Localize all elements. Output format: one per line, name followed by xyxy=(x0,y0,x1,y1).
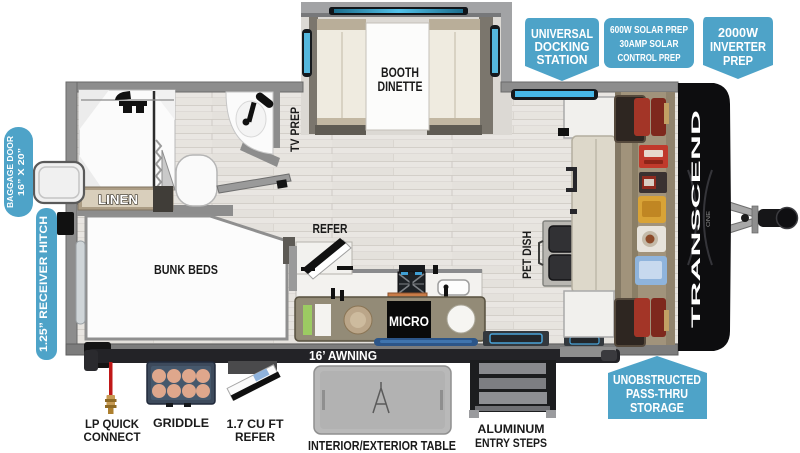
svg-text:INTERIOR/EXTERIOR TABLE: INTERIOR/EXTERIOR TABLE xyxy=(308,438,456,453)
svg-text:ENTRY STEPS: ENTRY STEPS xyxy=(475,436,547,450)
svg-text:PASS-THRU: PASS-THRU xyxy=(626,386,688,401)
svg-text:16” X 20”: 16” X 20” xyxy=(16,148,26,196)
svg-text:UNIVERSAL: UNIVERSAL xyxy=(531,27,593,41)
svg-text:LINEN: LINEN xyxy=(98,193,138,207)
svg-text:REFER: REFER xyxy=(235,430,275,444)
svg-text:600W SOLAR PREP: 600W SOLAR PREP xyxy=(610,24,688,36)
svg-text:DINETTE: DINETTE xyxy=(378,79,423,94)
svg-text:STATION: STATION xyxy=(537,53,588,67)
svg-text:ALUMINUM: ALUMINUM xyxy=(478,422,545,436)
svg-text:16’ AWNING: 16’ AWNING xyxy=(309,348,377,363)
svg-text:TRANSCEND: TRANSCEND xyxy=(689,109,703,328)
svg-text:30AMP SOLAR: 30AMP SOLAR xyxy=(620,38,679,50)
svg-text:REFER: REFER xyxy=(313,222,348,236)
svg-text:LP QUICK: LP QUICK xyxy=(85,417,139,431)
svg-text:TV PREP: TV PREP xyxy=(290,107,302,152)
svg-text:PET DISH: PET DISH xyxy=(520,231,534,279)
svg-text:UNOBSTRUCTED: UNOBSTRUCTED xyxy=(613,372,701,387)
svg-text:DOCKING: DOCKING xyxy=(535,40,590,54)
svg-text:1.25” RECEIVER HITCH: 1.25” RECEIVER HITCH xyxy=(38,216,50,352)
svg-text:BUNK BEDS: BUNK BEDS xyxy=(154,262,218,277)
svg-text:ONE: ONE xyxy=(706,211,712,227)
svg-text:2000W: 2000W xyxy=(718,26,758,40)
svg-text:PREP: PREP xyxy=(723,54,753,68)
svg-text:MICRO: MICRO xyxy=(389,314,429,329)
svg-text:BOOTH: BOOTH xyxy=(381,65,419,80)
svg-text:INVERTER: INVERTER xyxy=(710,40,766,54)
svg-text:CONTROL PREP: CONTROL PREP xyxy=(618,52,681,64)
svg-text:STORAGE: STORAGE xyxy=(630,400,684,415)
svg-text:CONNECT: CONNECT xyxy=(84,430,142,444)
svg-text:GRIDDLE: GRIDDLE xyxy=(153,416,209,430)
svg-text:BAGGAGE DOOR: BAGGAGE DOOR xyxy=(5,136,15,208)
svg-text:1.7 CU FT: 1.7 CU FT xyxy=(227,417,285,431)
